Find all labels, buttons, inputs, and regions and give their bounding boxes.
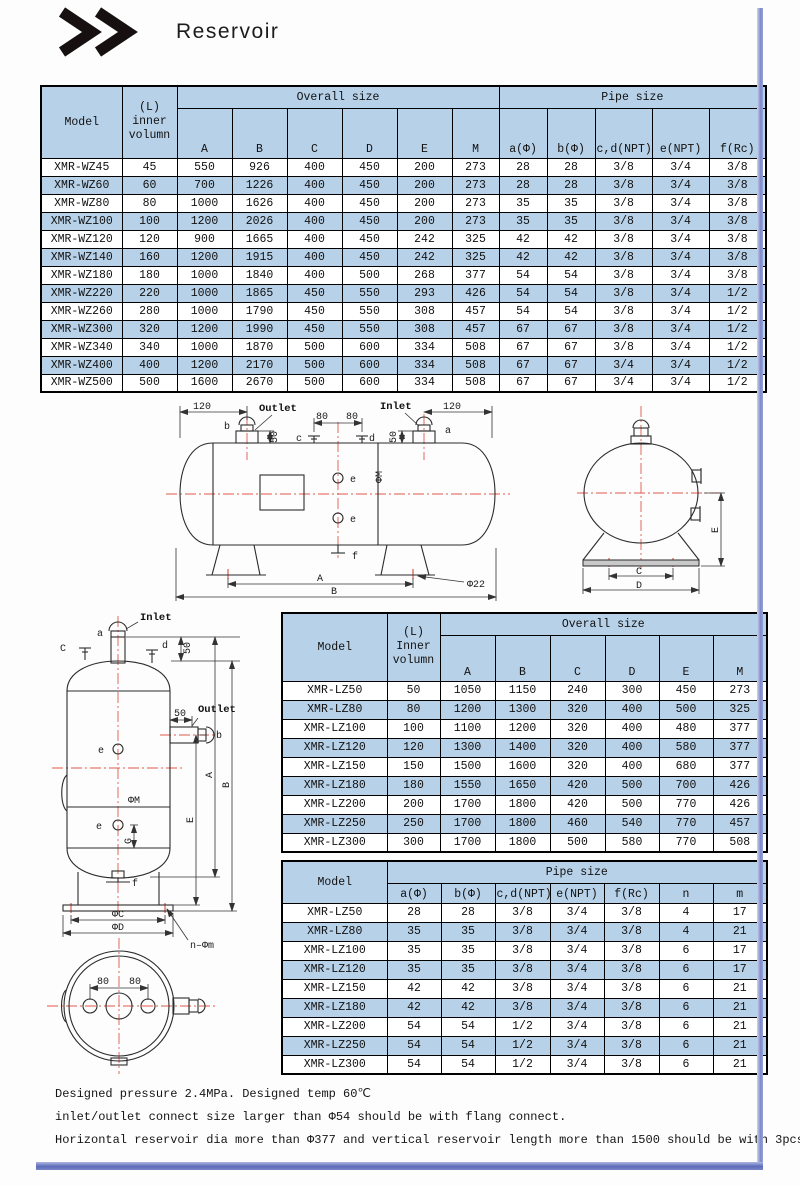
table-row: XMR-LZ5028283/83/43/8417 (282, 903, 767, 922)
value-cell: 60 (122, 176, 177, 194)
model-cell: XMR-LZ120 (282, 960, 387, 979)
col-group-pipe-size: Pipe size (387, 861, 767, 883)
dimension-lines (63, 622, 240, 940)
col-header: e(NPT) (652, 108, 709, 158)
port-d-label: d (369, 433, 375, 445)
value-cell: 35 (441, 960, 495, 979)
value-cell: 450 (659, 681, 713, 700)
value-cell: 1/2 (495, 1036, 550, 1055)
centerlines (577, 406, 721, 573)
drawing-labels: E C D (636, 527, 722, 592)
value-cell: 42 (441, 979, 495, 998)
drawing-labels: Inlet a C d 50 50 Outlet b e e ΦM G f E … (60, 612, 236, 952)
value-cell: 3/8 (604, 998, 659, 1017)
value-cell: 67 (499, 338, 547, 356)
value-cell: 400 (605, 757, 659, 776)
table-row: XMR-WZ5005001600267050060033450867673/43… (41, 374, 766, 392)
col-header: C (550, 635, 605, 681)
port-a-label: a (97, 629, 103, 640)
value-cell: 400 (287, 266, 342, 284)
value-cell: 42 (547, 230, 595, 248)
value-cell: 400 (287, 158, 342, 176)
value-cell: 900 (177, 230, 232, 248)
value-cell: 120 (122, 230, 177, 248)
value-cell: 334 (397, 356, 452, 374)
value-cell: 3/8 (495, 960, 550, 979)
value-cell: 180 (122, 266, 177, 284)
value-cell: 320 (550, 700, 605, 719)
value-cell: 400 (287, 194, 342, 212)
value-cell: 67 (499, 356, 547, 374)
col-header: E (659, 635, 713, 681)
value-cell: 508 (452, 374, 499, 392)
value-cell: 550 (342, 320, 397, 338)
table-row: XMR-LZ8035353/83/43/8421 (282, 922, 767, 941)
table-row: XMR-WZ1801801000184040050026837754543/83… (41, 266, 766, 284)
table-row: XMR-LZ20020017001800420500770426 (282, 795, 767, 814)
model-cell: XMR-LZ180 (282, 776, 387, 795)
value-cell: 28 (547, 176, 595, 194)
value-cell: 1000 (177, 266, 232, 284)
value-cell: 180 (387, 776, 440, 795)
col-header: D (605, 635, 659, 681)
col-group-pipe-size: Pipe size (499, 86, 766, 108)
table-row: XMR-WZ80801000162640045020027335353/83/4… (41, 194, 766, 212)
col-header: e(NPT) (550, 883, 604, 903)
value-cell: 200 (387, 795, 440, 814)
value-cell: 1550 (440, 776, 495, 795)
value-cell: 273 (452, 194, 499, 212)
dim-50-top: 50 (183, 642, 194, 654)
value-cell: 3/4 (652, 338, 709, 356)
value-cell: 240 (550, 681, 605, 700)
port-e-label: e (350, 475, 356, 486)
value-cell: 500 (287, 374, 342, 392)
model-cell: XMR-LZ300 (282, 833, 387, 852)
phi-m-label: ΦM (375, 471, 386, 483)
value-cell: 400 (605, 700, 659, 719)
table-row: XMR-WZ1401601200191540045024232542423/83… (41, 248, 766, 266)
value-cell: 200 (397, 194, 452, 212)
value-cell: 700 (659, 776, 713, 795)
value-cell: 3/4 (550, 941, 604, 960)
value-cell: 42 (387, 998, 441, 1017)
value-cell: 1000 (177, 194, 232, 212)
dim-b-label: B (331, 587, 337, 598)
value-cell: 550 (342, 302, 397, 320)
vessel-shell (180, 417, 495, 575)
value-cell: 1000 (177, 302, 232, 320)
value-cell: 1000 (177, 338, 232, 356)
value-cell: 1200 (177, 248, 232, 266)
value-cell: 35 (547, 212, 595, 230)
value-cell: 35 (441, 922, 495, 941)
value-cell: 457 (452, 302, 499, 320)
value-cell: 273 (452, 212, 499, 230)
port-b-label: b (224, 421, 230, 433)
table-row: XMR-WZ1001001200202640045020027335353/83… (41, 212, 766, 230)
model-cell: XMR-LZ150 (282, 979, 387, 998)
dim-a-label: A (205, 772, 216, 778)
model-cell: XMR-LZ100 (282, 719, 387, 738)
value-cell: 550 (342, 284, 397, 302)
dim-80: 80 (316, 412, 328, 423)
value-cell: 54 (547, 302, 595, 320)
value-cell: 480 (659, 719, 713, 738)
value-cell: 1915 (232, 248, 287, 266)
dim-a-label: A (317, 574, 323, 585)
value-cell: 450 (342, 158, 397, 176)
dim-120-left: 120 (193, 402, 211, 413)
top-view-shell (62, 951, 206, 1065)
dim-d-label: D (636, 581, 642, 592)
value-cell: 6 (659, 1036, 713, 1055)
value-cell: 67 (547, 356, 595, 374)
value-cell: 3/4 (652, 302, 709, 320)
value-cell: 3/8 (595, 266, 652, 284)
value-cell: 3/8 (604, 941, 659, 960)
value-cell: 45 (122, 158, 177, 176)
value-cell: 600 (342, 356, 397, 374)
value-cell: 35 (499, 194, 547, 212)
value-cell: 334 (397, 374, 452, 392)
col-header: c,d(NPT) (495, 883, 550, 903)
value-cell: 54 (547, 284, 595, 302)
table-row: XMR-WZ120120900166540045024232542423/83/… (41, 230, 766, 248)
value-cell: 1050 (440, 681, 495, 700)
value-cell: 54 (441, 1017, 495, 1036)
value-cell: 3/4 (652, 176, 709, 194)
table-row: XMR-LZ12012013001400320400580377 (282, 738, 767, 757)
port-f-label: f (132, 878, 138, 890)
table-row: XMR-LZ10035353/83/43/8617 (282, 941, 767, 960)
port-e-label: e (350, 515, 356, 526)
model-cell: XMR-LZ300 (282, 1055, 387, 1074)
value-cell: 2026 (232, 212, 287, 230)
value-cell: 420 (550, 795, 605, 814)
value-cell: 3/8 (595, 338, 652, 356)
dim-50-outlet: 50 (174, 709, 186, 720)
value-cell: 28 (499, 158, 547, 176)
col-header-volume: (L) inner volumn (122, 86, 177, 158)
value-cell: 1790 (232, 302, 287, 320)
value-cell: 2670 (232, 374, 287, 392)
value-cell: 500 (659, 700, 713, 719)
centerlines (47, 938, 215, 1074)
model-cell: XMR-WZ100 (41, 212, 122, 230)
value-cell: 120 (387, 738, 440, 757)
value-cell: 42 (441, 998, 495, 1017)
value-cell: 320 (550, 757, 605, 776)
value-cell: 200 (397, 158, 452, 176)
value-cell: 4 (659, 903, 713, 922)
value-cell: 540 (605, 814, 659, 833)
col-header: c,d(NPT) (595, 108, 652, 158)
model-cell: XMR-LZ200 (282, 1017, 387, 1036)
table-row: XMR-LZ20054541/23/43/8621 (282, 1017, 767, 1036)
model-cell: XMR-LZ80 (282, 922, 387, 941)
value-cell: 3/4 (652, 212, 709, 230)
model-cell: XMR-WZ140 (41, 248, 122, 266)
value-cell: 420 (550, 776, 605, 795)
vertical-reservoir-drawing: Inlet a C d 50 50 Outlet b e e ΦM G f E … (40, 610, 280, 972)
value-cell: 28 (441, 903, 495, 922)
model-cell: XMR-WZ120 (41, 230, 122, 248)
value-cell: 320 (122, 320, 177, 338)
value-cell: 1200 (177, 356, 232, 374)
value-cell: 3/8 (595, 230, 652, 248)
value-cell: 300 (387, 833, 440, 852)
col-header-model: Model (282, 613, 387, 681)
value-cell: 273 (452, 158, 499, 176)
value-cell: 3/4 (652, 194, 709, 212)
value-cell: 3/4 (550, 1055, 604, 1074)
value-cell: 550 (177, 158, 232, 176)
value-cell: 3/8 (595, 194, 652, 212)
value-cell: 54 (499, 302, 547, 320)
value-cell: 500 (605, 795, 659, 814)
port-e-label: e (98, 746, 104, 757)
col-header: B (495, 635, 550, 681)
value-cell: 1200 (495, 719, 550, 738)
value-cell: 500 (605, 776, 659, 795)
value-cell: 1700 (440, 814, 495, 833)
value-cell: 500 (342, 266, 397, 284)
value-cell: 500 (122, 374, 177, 392)
dim-c-label: C (636, 567, 642, 578)
value-cell: 35 (387, 941, 441, 960)
phi-22-label: Φ22 (467, 580, 485, 591)
value-cell: 6 (659, 1017, 713, 1036)
table-row: XMR-LZ18042423/83/43/8621 (282, 998, 767, 1017)
dim-80: 80 (97, 977, 109, 988)
value-cell: 450 (342, 212, 397, 230)
value-cell: 426 (452, 284, 499, 302)
col-header: A (177, 108, 232, 158)
value-cell: 1300 (440, 738, 495, 757)
value-cell: 250 (387, 814, 440, 833)
value-cell: 80 (387, 700, 440, 719)
col-header: b(Φ) (441, 883, 495, 903)
table-row: XMR-LZ10010011001200320400480377 (282, 719, 767, 738)
value-cell: 35 (387, 922, 441, 941)
col-header: a(Φ) (387, 883, 441, 903)
value-cell: 6 (659, 960, 713, 979)
table-row: XMR-LZ15015015001600320400680377 (282, 757, 767, 776)
value-cell: 2170 (232, 356, 287, 374)
value-cell: 400 (287, 176, 342, 194)
value-cell: 54 (387, 1017, 441, 1036)
value-cell: 450 (342, 248, 397, 266)
port-c-label: C (60, 644, 66, 655)
value-cell: 1300 (495, 700, 550, 719)
col-header: a(Φ) (499, 108, 547, 158)
table-row: XMR-WZ4004001200217050060033450867673/43… (41, 356, 766, 374)
value-cell: 1226 (232, 176, 287, 194)
col-header: C (287, 108, 342, 158)
value-cell: 600 (342, 374, 397, 392)
port-b-label: b (216, 730, 222, 742)
value-cell: 1/2 (495, 1017, 550, 1036)
dim-120-right: 120 (443, 402, 461, 413)
phi-c-label: ΦC (112, 910, 124, 921)
value-cell: 293 (397, 284, 452, 302)
value-cell: 3/4 (550, 998, 604, 1017)
table-row: XMR-LZ25025017001800460540770457 (282, 814, 767, 833)
value-cell: 377 (452, 266, 499, 284)
inlet-label: Inlet (380, 401, 412, 413)
value-cell: 3/4 (550, 1017, 604, 1036)
value-cell: 3/8 (595, 212, 652, 230)
value-cell: 54 (441, 1055, 495, 1074)
port-f-label: f (352, 551, 358, 563)
value-cell: 3/4 (595, 356, 652, 374)
value-cell: 1600 (495, 757, 550, 776)
value-cell: 6 (659, 979, 713, 998)
value-cell: 400 (605, 719, 659, 738)
lz-pipe-table: Model Pipe size a(Φ) b(Φ) c,d(NPT) e(NPT… (281, 860, 768, 1075)
dim-80: 80 (129, 977, 141, 988)
value-cell: 3/8 (595, 302, 652, 320)
col-header: A (440, 635, 495, 681)
value-cell: 54 (387, 1036, 441, 1055)
value-cell: 80 (122, 194, 177, 212)
value-cell: 700 (177, 176, 232, 194)
value-cell: 400 (287, 248, 342, 266)
dim-80: 80 (346, 412, 358, 423)
value-cell: 400 (287, 212, 342, 230)
model-cell: XMR-WZ340 (41, 338, 122, 356)
col-header: E (397, 108, 452, 158)
model-cell: XMR-WZ260 (41, 302, 122, 320)
value-cell: 67 (499, 320, 547, 338)
table-row: XMR-WZ2202201000186545055029342654543/83… (41, 284, 766, 302)
value-cell: 242 (397, 248, 452, 266)
model-cell: XMR-WZ80 (41, 194, 122, 212)
value-cell: 280 (122, 302, 177, 320)
value-cell: 460 (550, 814, 605, 833)
value-cell: 3/8 (495, 941, 550, 960)
value-cell: 770 (659, 814, 713, 833)
value-cell: 6 (659, 941, 713, 960)
note-line: Horizontal reservoir dia more than Φ377 … (55, 1133, 800, 1147)
value-cell: 500 (287, 356, 342, 374)
value-cell: 300 (605, 681, 659, 700)
model-cell: XMR-LZ120 (282, 738, 387, 757)
dim-50: 50 (270, 431, 281, 443)
value-cell: 1/2 (495, 1055, 550, 1074)
value-cell: 770 (659, 833, 713, 852)
value-cell: 6 (659, 998, 713, 1017)
value-cell: 42 (499, 248, 547, 266)
value-cell: 3/8 (595, 158, 652, 176)
value-cell: 3/8 (595, 248, 652, 266)
value-cell: 4 (659, 922, 713, 941)
page-border-right (757, 8, 763, 1166)
col-group-overall-size: Overall size (177, 86, 499, 108)
value-cell: 3/4 (652, 374, 709, 392)
model-cell: XMR-WZ220 (41, 284, 122, 302)
value-cell: 1500 (440, 757, 495, 776)
value-cell: 67 (547, 374, 595, 392)
model-cell: XMR-LZ50 (282, 681, 387, 700)
value-cell: 6 (659, 1055, 713, 1074)
table-row: XMR-LZ505010501150240300450273 (282, 681, 767, 700)
table-row: XMR-WZ454555092640045020027328283/83/43/… (41, 158, 766, 176)
value-cell: 3/8 (604, 960, 659, 979)
value-cell: 42 (499, 230, 547, 248)
value-cell: 242 (397, 230, 452, 248)
value-cell: 35 (547, 194, 595, 212)
value-cell: 3/4 (595, 374, 652, 392)
value-cell: 1600 (177, 374, 232, 392)
value-cell: 308 (397, 302, 452, 320)
model-cell: XMR-LZ250 (282, 1036, 387, 1055)
value-cell: 325 (452, 248, 499, 266)
table-row: XMR-LZ18018015501650420500700426 (282, 776, 767, 795)
value-cell: 1840 (232, 266, 287, 284)
value-cell: 508 (452, 338, 499, 356)
value-cell: 3/8 (495, 979, 550, 998)
model-cell: XMR-LZ250 (282, 814, 387, 833)
value-cell: 400 (122, 356, 177, 374)
col-header: B (232, 108, 287, 158)
port-a-label: a (445, 426, 451, 437)
col-header-model: Model (282, 861, 387, 903)
model-cell: XMR-LZ180 (282, 998, 387, 1017)
dimension-lines (583, 493, 725, 594)
notes: Designed pressure 2.4MPa. Designed temp … (55, 1086, 800, 1156)
value-cell: 580 (605, 833, 659, 852)
value-cell: 35 (387, 960, 441, 979)
model-cell: XMR-WZ45 (41, 158, 122, 176)
value-cell: 1870 (232, 338, 287, 356)
horizontal-reservoir-drawing: 120 120 Outlet Inlet 80 80 b a c d 50 50… (162, 398, 562, 605)
value-cell: 28 (499, 176, 547, 194)
note-line: inlet/outlet connect size larger than Φ5… (55, 1110, 800, 1124)
value-cell: 320 (550, 738, 605, 757)
value-cell: 1800 (495, 814, 550, 833)
value-cell: 450 (287, 284, 342, 302)
value-cell: 3/4 (652, 230, 709, 248)
value-cell: 3/8 (604, 922, 659, 941)
value-cell: 325 (452, 230, 499, 248)
note-line: Designed pressure 2.4MPa. Designed temp … (55, 1086, 800, 1101)
value-cell: 3/4 (652, 320, 709, 338)
model-cell: XMR-WZ500 (41, 374, 122, 392)
value-cell: 450 (287, 320, 342, 338)
col-header: b(Φ) (547, 108, 595, 158)
model-cell: XMR-LZ200 (282, 795, 387, 814)
centerlines (52, 616, 218, 912)
model-cell: XMR-WZ180 (41, 266, 122, 284)
outlet-label: Outlet (198, 704, 236, 716)
value-cell: 3/8 (595, 176, 652, 194)
value-cell: 54 (499, 266, 547, 284)
value-cell: 42 (547, 248, 595, 266)
value-cell: 500 (287, 338, 342, 356)
dim-b-label: B (222, 782, 233, 788)
value-cell: 3/4 (550, 960, 604, 979)
value-cell: 3/4 (652, 284, 709, 302)
table-row: XMR-LZ30054541/23/43/8621 (282, 1055, 767, 1074)
outlet-label: Outlet (259, 403, 297, 415)
value-cell: 450 (287, 302, 342, 320)
value-cell: 1626 (232, 194, 287, 212)
page-title: Reservoir (176, 20, 279, 44)
value-cell: 3/4 (550, 979, 604, 998)
value-cell: 1800 (495, 833, 550, 852)
